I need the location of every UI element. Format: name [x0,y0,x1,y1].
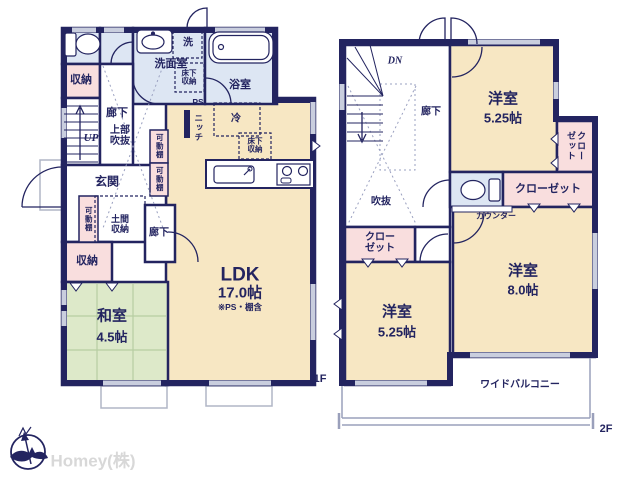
label-closet-middle: クローゼット [515,183,581,195]
label-bedroom-left: 洋室 [382,305,412,322]
label-open-above: 上部 吹抜 [110,125,130,147]
label-ldk-size: 17.0帖 [218,286,262,303]
label-bathroom: 浴室 [229,79,251,91]
washbasin-icon [137,30,172,53]
label-hall-2f: 廊下 [421,106,441,117]
label-doma-storage: 土間 収納 [111,214,129,234]
kitchen-counter [206,160,314,188]
label-japanese-room: 和室 [97,309,127,326]
label-fridge: 冷 [231,113,241,124]
label-storage-upper-1f: 収納 [70,74,92,86]
company-watermark: Homey(株) [50,451,135,470]
label-shelf-b: 可動棚 [155,166,163,192]
bathtub-icon [209,32,273,63]
label-underfloor-ldk: 床下 収納 [248,138,263,155]
label-ps: PS [192,98,203,108]
compass-icon [10,427,48,469]
label-shelf-c: 可動棚 [84,206,92,232]
label-stairs-down: DN [388,55,402,66]
label-washer: 洗 [183,37,193,48]
label-bedroom-right-size: 8.0帖 [507,284,538,299]
label-underfloor-washroom: 床下 収納 [182,70,197,87]
label-hall-lower-1f: 廊下 [149,227,169,238]
label-niche: ニッチ [193,114,203,143]
label-bedroom-right: 洋室 [508,264,538,281]
label-closet-left: クロー ゼット [365,232,395,254]
label-bedroom-top: 洋室 [488,92,518,109]
label-bedroom-left-size: 5.25帖 [378,326,416,341]
label-hall-upper-1f: 廊下 [106,107,128,119]
label-ldk-note: ※PS・棚含 [218,303,262,313]
toilet-icon-1f [65,33,100,56]
label-japanese-room-size: 4.5帖 [96,331,127,346]
label-entrance: 玄関 [95,175,119,188]
label-void: 吹抜 [371,196,391,207]
label-closet-vertical: クロー ゼット [566,131,586,161]
ps-stub [184,110,190,138]
label-shelf-a: 可動棚 [155,133,163,159]
label-counter: カウンター [476,213,516,222]
label-stairs-up: UP [84,132,99,144]
label-balcony: ワイドバルコニー [480,379,560,390]
toilet-icon-2f [461,179,500,201]
label-ldk: LDK [220,264,259,285]
label-storage-lower-1f: 収納 [76,255,98,267]
label-floor-2f: 2F [600,423,613,435]
label-bedroom-top-size: 5.25帖 [484,112,522,127]
label-floor-1f: 1F [314,373,327,385]
floorplan: 収納 廊下 UP 上部 吹抜 洗面室 洗 床下 収納 浴室 PS ニッチ 冷 床… [0,0,640,480]
floorplan-drawing [0,0,640,480]
